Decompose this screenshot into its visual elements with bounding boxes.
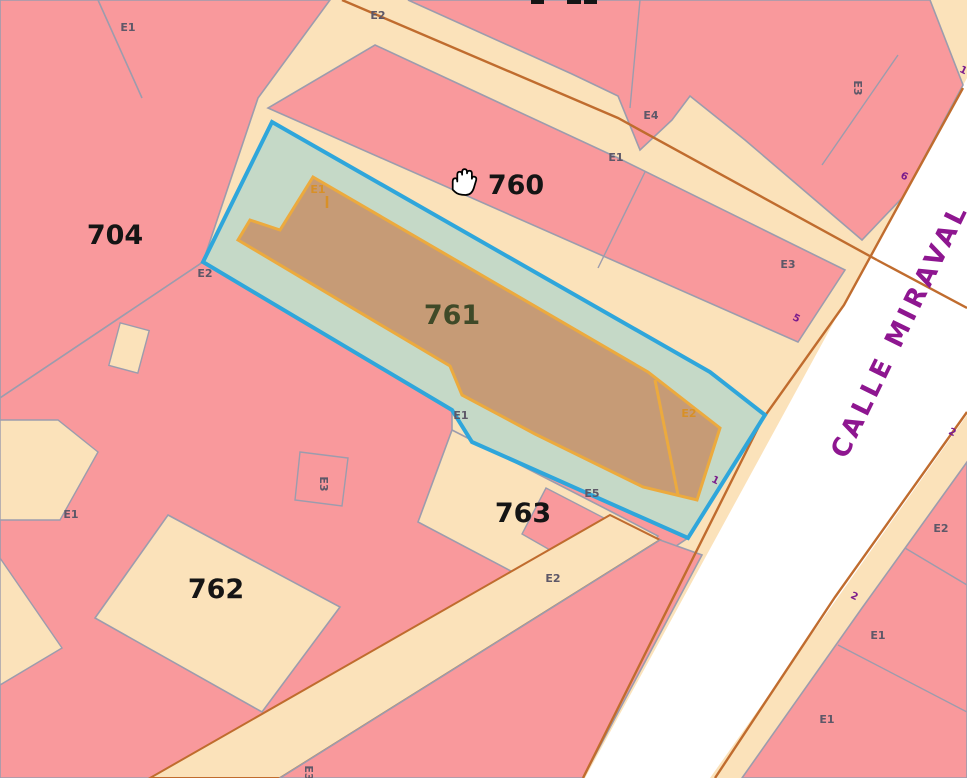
cadastral-map[interactable]: CALLE MIRAVAL 704760761762763E1E2E4E1E3E… bbox=[0, 0, 967, 778]
entrance-label: E1 bbox=[120, 21, 135, 34]
entrance-label: E4 bbox=[643, 109, 659, 122]
entrance-label: E1 bbox=[608, 151, 623, 164]
block-number-762: 762 bbox=[188, 574, 244, 605]
entrance-label: E2 bbox=[545, 572, 560, 585]
entrance-label: E2 bbox=[370, 9, 385, 22]
entrance-label: E3 bbox=[302, 765, 315, 778]
entrance-label: E3 bbox=[851, 80, 864, 95]
block-number-761: 761 bbox=[424, 300, 480, 331]
entrance-label: E1 bbox=[819, 713, 834, 726]
block-number-704: 704 bbox=[87, 220, 143, 251]
entrance-label: E2 bbox=[681, 407, 696, 420]
entrance-label: E5 bbox=[584, 487, 599, 500]
entrance-label: E3 bbox=[317, 476, 330, 491]
entrance-label: E1 bbox=[63, 508, 78, 521]
map-viewport[interactable]: CALLE MIRAVAL 704760761762763E1E2E4E1E3E… bbox=[0, 0, 967, 778]
block-number-763: 763 bbox=[495, 498, 551, 529]
entrance-label: E3 bbox=[780, 258, 795, 271]
block-number-760: 760 bbox=[488, 170, 544, 201]
entrance-label: E1 bbox=[310, 183, 325, 196]
entrance-label: E1 bbox=[870, 629, 885, 642]
entrance-label: E1 bbox=[453, 409, 468, 422]
entrance-label: E2 bbox=[933, 522, 948, 535]
entrance-label: E2 bbox=[197, 267, 212, 280]
